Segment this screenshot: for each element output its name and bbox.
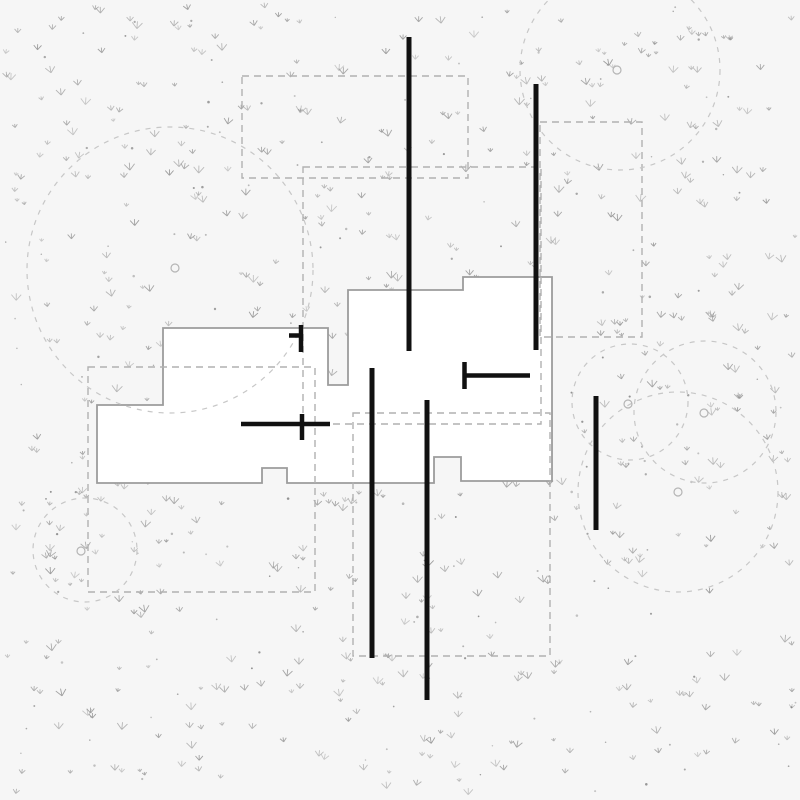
ground-speck — [537, 51, 539, 53]
ground-speck — [33, 705, 35, 707]
ground-speck — [251, 667, 253, 669]
ground-speck — [287, 497, 290, 500]
ground-speck — [594, 790, 596, 792]
ground-speck — [207, 126, 209, 128]
ground-speck — [205, 553, 207, 555]
site-plan-canvas — [0, 0, 800, 800]
ground-speck — [495, 622, 497, 624]
ground-speck — [82, 32, 84, 34]
ground-speck — [216, 619, 218, 621]
ground-speck — [460, 696, 462, 698]
ground-speck — [302, 631, 304, 633]
ground-speck — [530, 98, 532, 100]
ground-speck — [404, 99, 406, 101]
ground-speck — [86, 147, 88, 149]
ground-speck — [258, 651, 260, 653]
ground-speck — [780, 407, 782, 409]
ground-speck — [413, 621, 415, 623]
ground-speck — [71, 462, 73, 464]
ground-speck — [533, 718, 535, 720]
ground-speck — [90, 716, 92, 718]
ground-speck — [684, 768, 686, 770]
ground-speck — [134, 21, 136, 23]
ground-speck — [500, 245, 502, 247]
ground-speck — [107, 245, 109, 247]
ground-speck — [651, 156, 652, 157]
ground-speck — [586, 466, 588, 468]
ground-speck — [632, 249, 634, 251]
ground-speck — [480, 774, 481, 775]
ground-speck — [434, 518, 436, 520]
ground-speck — [458, 63, 460, 65]
ground-speck — [645, 473, 647, 475]
ground-speck — [723, 174, 724, 175]
ground-speck — [21, 384, 23, 386]
ground-speck — [790, 706, 792, 708]
ground-speck — [645, 783, 648, 786]
ground-speck — [207, 101, 210, 104]
ground-speck — [706, 96, 708, 98]
ground-speck — [57, 591, 59, 593]
ground-speck — [20, 753, 21, 754]
ground-speck — [219, 131, 221, 133]
ground-speck — [339, 237, 341, 239]
ground-speck — [298, 567, 299, 568]
ground-speck — [757, 379, 759, 381]
ground-speck — [131, 147, 134, 150]
ground-speck — [464, 657, 466, 659]
ground-speck — [171, 533, 173, 535]
ground-speck — [269, 575, 271, 577]
ground-speck — [483, 201, 485, 203]
ground-speck — [627, 463, 629, 465]
ground-speck — [715, 128, 717, 130]
ground-speck — [537, 570, 539, 572]
ground-speck — [177, 693, 179, 695]
ground-speck — [727, 96, 729, 98]
ground-speck — [590, 711, 592, 713]
ground-speck — [260, 102, 262, 104]
ground-speck — [570, 491, 573, 494]
ground-speck — [462, 645, 464, 647]
ground-speck — [5, 241, 6, 242]
ground-speck — [156, 659, 158, 661]
ground-speck — [201, 186, 204, 189]
ground-speck — [141, 778, 143, 780]
ground-speck — [355, 501, 357, 503]
ground-speck — [593, 580, 595, 582]
ground-speck — [402, 502, 405, 505]
ground-speck — [190, 20, 192, 22]
ground-speck — [697, 452, 699, 454]
ground-speck — [248, 184, 250, 186]
ground-speck — [320, 246, 322, 248]
ground-speck — [455, 516, 457, 518]
ground-speck — [150, 717, 152, 719]
ground-speck — [453, 565, 454, 566]
ground-speck — [75, 491, 77, 493]
ground-speck — [97, 356, 99, 358]
ground-speck — [600, 78, 602, 80]
ground-speck — [650, 613, 652, 615]
ground-speck — [214, 308, 216, 310]
ground-speck — [393, 706, 395, 708]
ground-speck — [44, 56, 46, 58]
ground-speck — [56, 533, 58, 535]
ground-speck — [205, 234, 207, 236]
ground-speck — [368, 156, 370, 158]
ground-speck — [132, 275, 135, 278]
ground-speck — [451, 258, 453, 260]
ground-speck — [335, 17, 336, 18]
ground-speck — [644, 460, 646, 462]
site-plan — [0, 0, 800, 800]
ground-speck — [676, 423, 678, 425]
ground-speck — [183, 551, 185, 553]
ground-speck — [23, 509, 25, 511]
ground-speck — [669, 744, 671, 746]
ground-speck — [647, 549, 649, 551]
ground-speck — [193, 187, 195, 189]
ground-speck — [294, 95, 296, 97]
ground-speck — [26, 728, 28, 730]
ground-speck — [702, 161, 704, 163]
ground-speck — [93, 764, 95, 766]
ground-speck — [693, 676, 695, 678]
ground-speck — [602, 291, 604, 293]
ground-speck — [698, 38, 700, 40]
ground-speck — [629, 396, 631, 398]
ground-speck — [89, 739, 90, 740]
ground-speck — [576, 614, 579, 617]
ground-speck — [602, 357, 604, 359]
ground-speck — [226, 546, 228, 548]
ground-speck — [290, 322, 292, 324]
ground-speck — [211, 59, 213, 61]
ground-speck — [61, 661, 64, 664]
ground-speck — [605, 742, 607, 744]
ground-speck — [132, 541, 133, 542]
ground-speck — [321, 141, 323, 143]
ground-speck — [221, 81, 223, 83]
ground-speck — [795, 702, 797, 704]
ground-speck — [739, 192, 741, 194]
ground-speck — [124, 35, 126, 37]
ground-speck — [478, 616, 480, 618]
ground-speck — [45, 498, 47, 500]
ground-speck — [481, 16, 483, 18]
ground-speck — [14, 318, 16, 320]
ground-speck — [41, 253, 43, 255]
ground-speck — [586, 533, 588, 535]
ground-speck — [575, 193, 577, 195]
ground-speck — [416, 616, 419, 619]
ground-speck — [153, 365, 154, 366]
ground-speck — [778, 743, 780, 745]
ground-speck — [173, 233, 175, 235]
ground-speck — [365, 759, 367, 761]
ground-speck — [443, 153, 445, 155]
ground-speck — [607, 587, 609, 589]
ground-speck — [50, 491, 52, 493]
ground-speck — [345, 228, 347, 230]
ground-speck — [492, 745, 493, 746]
ground-speck — [674, 6, 676, 8]
ground-speck — [607, 64, 609, 66]
ground-speck — [634, 655, 636, 657]
ground-speck — [788, 765, 790, 767]
ground-speck — [386, 748, 388, 750]
ground-speck — [698, 290, 700, 292]
ground-speck — [297, 164, 299, 166]
ground-speck — [81, 376, 83, 378]
ground-speck — [16, 348, 17, 349]
ground-speck — [649, 296, 652, 299]
ground-speck — [581, 421, 583, 423]
ground-speck — [672, 11, 673, 12]
